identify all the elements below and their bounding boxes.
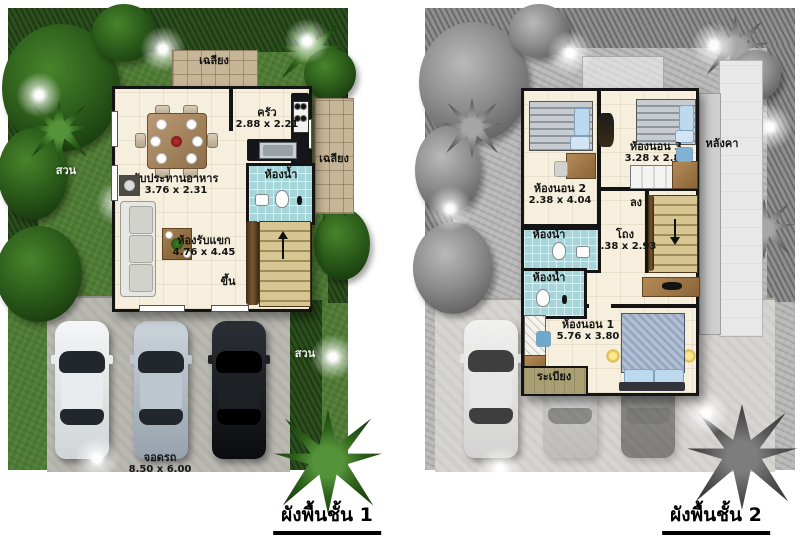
plate: [192, 136, 203, 147]
tree-gray: [413, 222, 493, 314]
bedroom2-label: ห้องนอน 2 2.38 x 4.04: [529, 183, 592, 206]
window: [111, 111, 118, 147]
plate: [186, 119, 197, 130]
parking-name: จอดรถ: [144, 451, 177, 464]
kitchen-name: ครัว: [257, 106, 276, 119]
caption-floor2: ผังพื้นชั้น 2: [662, 500, 770, 535]
car-mirror: [265, 355, 270, 364]
dining-name: รับประทานอาหาร: [134, 172, 219, 185]
toilet: [552, 242, 566, 260]
window: [139, 305, 185, 312]
car-mirror: [130, 355, 135, 364]
bedroom1-name: ห้องนอน 1: [562, 318, 614, 331]
garden-label-right: สวน: [295, 348, 315, 360]
stairs-up-label: ขึ้น: [220, 276, 235, 288]
kitchen-sink: [259, 142, 297, 159]
living-label: ห้องรับแขก 4.76 x 4.45: [173, 235, 236, 258]
dresser-wood: [672, 161, 698, 189]
car-black: [212, 321, 266, 459]
stairs-down-label: ลง: [630, 197, 642, 209]
bedroom3-name: ห้องนอน 3: [630, 140, 682, 153]
car-mirror: [460, 354, 465, 363]
toilet: [536, 289, 550, 307]
hall-label: โถง 2.38 x 2.93: [594, 229, 657, 252]
balcony-label: ระเบียง: [537, 371, 571, 383]
burner: [301, 116, 306, 121]
burner: [301, 104, 306, 109]
porch-top-label: เฉลียง: [199, 55, 229, 67]
garden-label-left: สวน: [56, 165, 76, 177]
car-roof: [218, 373, 260, 409]
shower-drain: [297, 196, 302, 205]
car-rear-glass: [626, 408, 670, 424]
sofa-cushion: [129, 206, 153, 234]
car-rear-glass: [548, 408, 592, 424]
side-cabinet: [119, 175, 140, 196]
tree: [92, 4, 156, 62]
sofa: [120, 201, 156, 297]
bedroom2-name: ห้องนอน 2: [534, 182, 586, 195]
plate: [186, 153, 197, 164]
dresser-bedroom3: [630, 165, 674, 189]
wash-basin: [576, 246, 590, 258]
bed-bedroom2: [529, 101, 593, 151]
roof-label: หลังคา: [706, 138, 739, 150]
window: [111, 165, 118, 201]
bathroom-label-floor1: ห้องน้ำ: [265, 169, 298, 181]
pillow: [574, 108, 590, 136]
car-mirror: [187, 355, 192, 364]
chair-bedroom2: [554, 161, 568, 177]
porch-right-label: เฉลียง: [319, 153, 349, 165]
floor-plan-image: สวน สวน จอดรถ 8.50 x 6.00 เฉลียง เฉลียง: [0, 0, 800, 537]
tree: [314, 208, 370, 280]
caption-floor1: ผังพื้นชั้น 1: [273, 500, 381, 535]
car-rear-glass: [217, 409, 261, 425]
pillow: [679, 105, 694, 131]
bed-headboard: [619, 382, 685, 391]
shower-drain: [562, 295, 567, 304]
car-windshield: [216, 351, 262, 373]
blanket-fold: [570, 136, 590, 150]
car-roof: [470, 372, 512, 408]
wall: [597, 91, 601, 225]
car-ghost-white: [464, 320, 518, 458]
car-white: [55, 321, 109, 459]
car-silver: [134, 321, 188, 459]
stair-railing: [246, 221, 259, 305]
roof-strip: [699, 93, 721, 335]
stool-blue: [536, 331, 551, 347]
car-mirror: [208, 355, 213, 364]
bathroom-upper-label: ห้องน้ำ: [533, 229, 566, 241]
car-mirror: [51, 355, 56, 364]
car-roof: [61, 373, 103, 409]
hall-name: โถง: [616, 228, 634, 241]
hall-size: 2.38 x 2.93: [594, 241, 657, 252]
car-windshield: [59, 351, 105, 373]
house-floor1: ครัว 2.88 x 2.21 ห้องน้ำ ขึ้น: [112, 86, 312, 312]
sofa-cushion: [129, 264, 153, 292]
car-windshield: [138, 351, 184, 373]
desk-bedroom2: [566, 153, 596, 179]
dining-table: [147, 113, 207, 169]
table-fan: [662, 282, 682, 290]
roof-panel-right: [719, 60, 763, 337]
plate: [156, 153, 167, 164]
bed-bedroom3: [636, 99, 696, 145]
sink-basin: [263, 145, 293, 156]
bedside-lamp: [606, 349, 620, 363]
window: [211, 305, 249, 312]
plate: [156, 119, 167, 130]
tree: [0, 226, 82, 322]
stool-blue: [676, 147, 693, 162]
parking-size: 8.50 x 6.00: [129, 464, 192, 475]
kitchen-size: 2.88 x 2.21: [236, 119, 299, 130]
car-roof: [140, 373, 182, 409]
toilet: [275, 190, 289, 208]
living-name: ห้องรับแขก: [177, 234, 230, 247]
sofa-cushion: [129, 235, 153, 263]
dining-chair: [207, 133, 218, 148]
stair-arrow-up: [278, 231, 288, 239]
dining-size: 3.76 x 2.31: [134, 185, 219, 196]
house-floor2: ห้องนอน 2 2.38 x 4.04 ห้องนอน 3 3.28 x 2…: [521, 88, 699, 396]
stair-arrow-stem: [282, 239, 284, 259]
dining-chair: [135, 133, 146, 148]
parking-label: จอดรถ 8.50 x 6.00: [129, 452, 192, 475]
car-rear-glass: [469, 408, 513, 424]
dining-label: รับประทานอาหาร 3.76 x 2.31: [134, 173, 219, 196]
kitchen-label: ครัว 2.88 x 2.21: [236, 107, 299, 130]
wall: [229, 89, 233, 131]
car-rear-glass: [60, 409, 104, 425]
fan-top: [124, 180, 135, 191]
tree-gray: [509, 4, 569, 58]
bedroom2-size: 2.38 x 4.04: [529, 195, 592, 206]
living-size: 4.76 x 4.45: [173, 247, 236, 258]
table-centerpiece: [171, 136, 182, 147]
car-windshield: [468, 350, 514, 372]
bedroom1-size: 5.76 x 3.80: [557, 331, 620, 342]
stair-arrow-stem: [674, 219, 676, 239]
car-rear-glass: [139, 409, 183, 425]
bathroom-lower-label: ห้องน้ำ: [533, 272, 566, 284]
plate: [150, 136, 161, 147]
ceiling-fan: [598, 113, 614, 147]
car-mirror: [108, 355, 113, 364]
bed-bedroom1: [621, 313, 685, 373]
wash-basin: [255, 194, 269, 206]
bedroom1-label: ห้องนอน 1 5.76 x 3.80: [557, 319, 620, 342]
